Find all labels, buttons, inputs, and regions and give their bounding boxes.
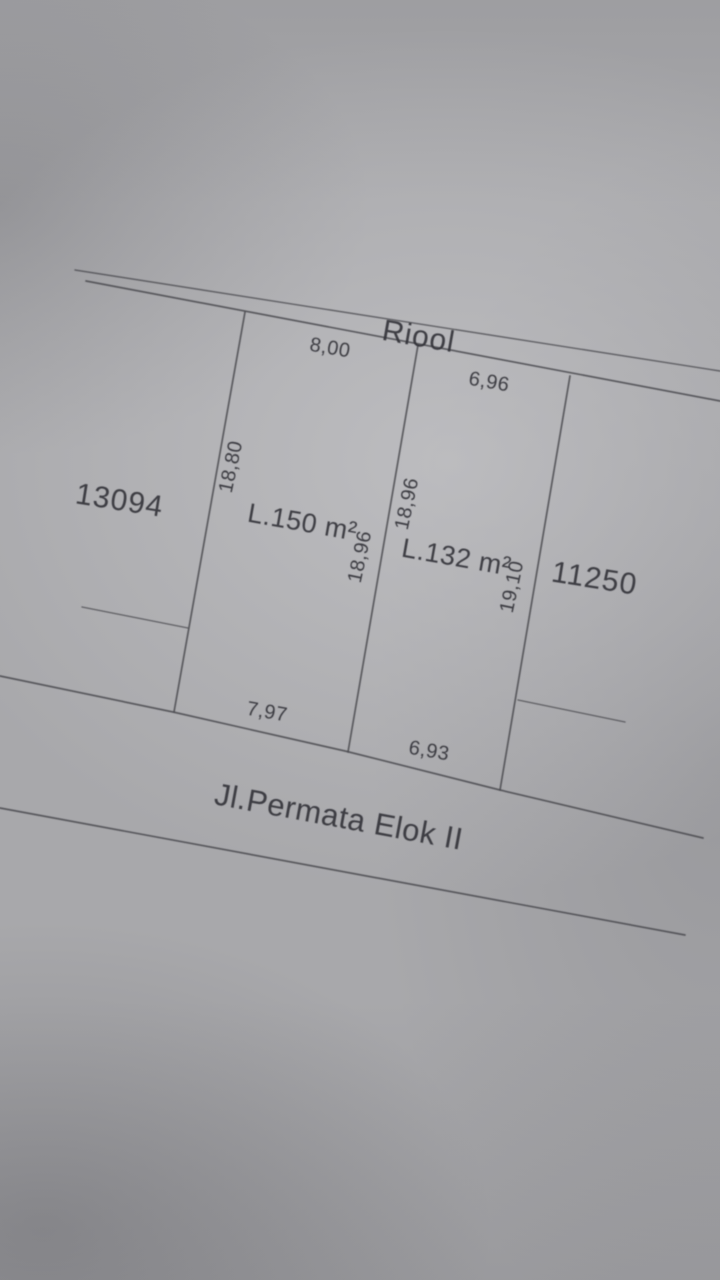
plot-sketch-drawing: Riool 8,00 6,96 18,80 18,96 18,96 19,10 … xyxy=(0,0,720,1280)
right-neighbor-lot-number: 11250 xyxy=(549,556,639,602)
right-parcel-area-label: L.132 m² xyxy=(400,533,514,582)
riool-label: Riool xyxy=(380,314,458,359)
right-neighbor-tick-line xyxy=(518,700,625,722)
left-parcel-west-depth-dimension: 18,80 xyxy=(215,439,247,495)
left-parcel-area-label: L.150 m² xyxy=(246,498,360,547)
right-parcel-top-dimension: 6,96 xyxy=(467,368,511,397)
right-parcel-west-depth-dimension: 18,96 xyxy=(391,476,423,532)
left-parcel-bottom-dimension: 7,97 xyxy=(245,698,289,727)
street-name-label: Jl.Permata Elok II xyxy=(212,777,466,857)
right-parcel-bottom-dimension: 6,93 xyxy=(407,737,451,766)
parcel-west-boundary-line xyxy=(174,312,245,712)
left-neighbor-lot-number: 13094 xyxy=(73,477,166,523)
left-parcel-top-dimension: 8,00 xyxy=(308,334,352,363)
photographed-site-plan: Riool 8,00 6,96 18,80 18,96 18,96 19,10 … xyxy=(0,0,720,1280)
left-neighbor-tick-line xyxy=(82,607,188,628)
